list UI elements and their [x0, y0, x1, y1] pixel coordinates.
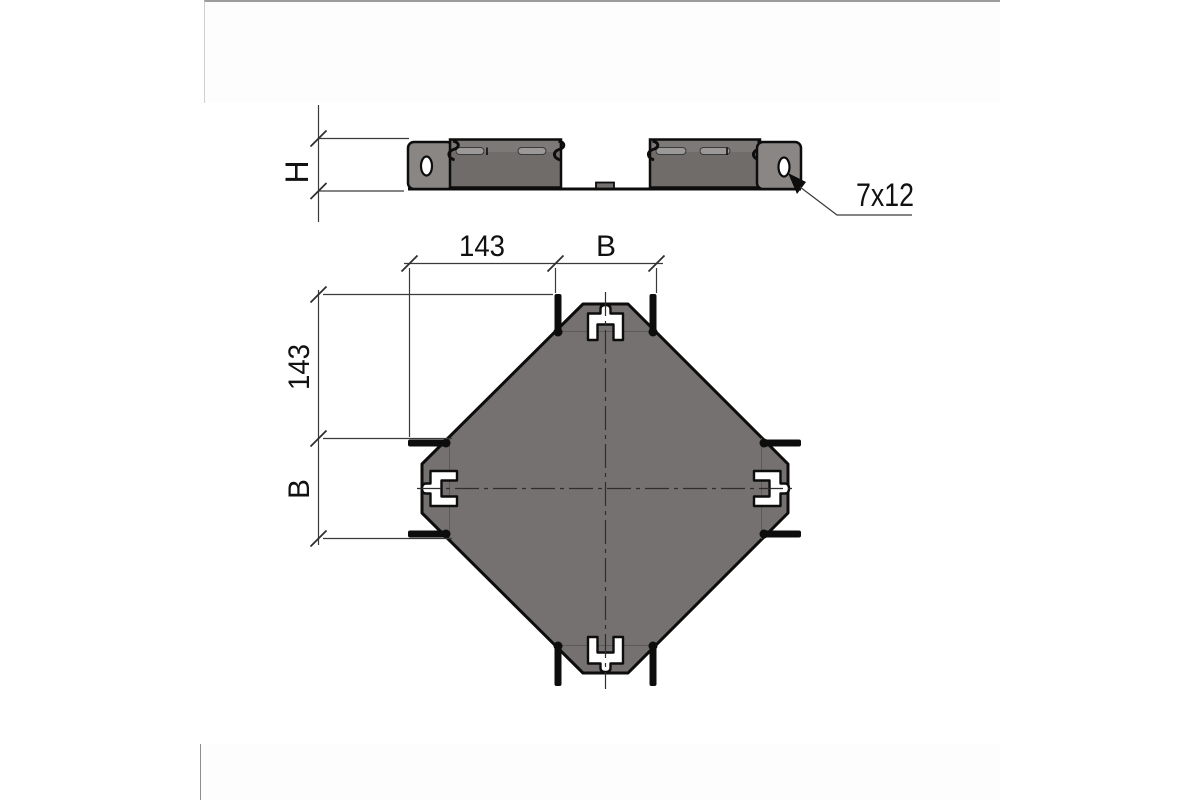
right-side-wall [648, 140, 762, 188]
h-dimension: H [279, 105, 409, 222]
wall-slot [700, 148, 730, 155]
wall-slot [456, 148, 484, 155]
technical-drawing: H [0, 0, 1200, 800]
center-clip-edge [596, 183, 614, 189]
hole-size-label: 7x12 [856, 177, 914, 213]
left-dim-143-label: 143 [283, 344, 316, 390]
h-dimension-label: H [279, 160, 315, 183]
wall-slot [518, 148, 546, 155]
left-dim-b-label: B [283, 479, 316, 499]
top-dim-143-label: 143 [459, 230, 505, 263]
left-side-wall [449, 140, 564, 188]
hole-callout: 7x12 [788, 173, 914, 215]
mounting-hole-right [779, 158, 790, 177]
side-view: H [279, 105, 914, 222]
mounting-hole-left [421, 157, 432, 176]
wall-slot [656, 148, 686, 155]
plan-view: 143 B 143 B [283, 230, 801, 689]
page: H [0, 0, 1200, 800]
top-dim-b-label: B [596, 230, 616, 263]
